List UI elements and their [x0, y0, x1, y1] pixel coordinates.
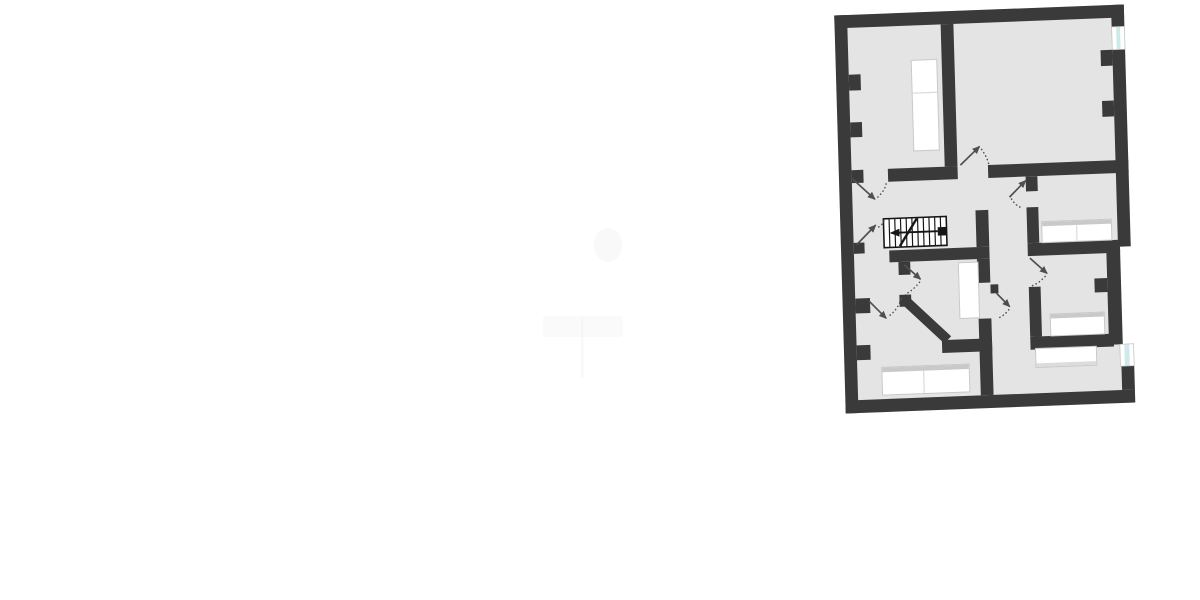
page — [0, 0, 1200, 600]
single-bed — [1035, 346, 1096, 367]
wall-stub — [850, 122, 862, 137]
floor-plan — [0, 0, 1200, 600]
wall-segment — [888, 166, 958, 182]
wall-segment — [942, 338, 992, 353]
wall-segment — [1029, 287, 1042, 337]
right-wall-bottom-window — [1120, 344, 1134, 366]
wall-segment — [1111, 4, 1124, 26]
desk — [958, 262, 979, 318]
wardrobe-body — [911, 59, 939, 151]
desk-body — [958, 262, 979, 318]
wall-segment — [975, 210, 989, 247]
double-bed-small — [1042, 219, 1112, 243]
wall-stub — [990, 284, 998, 293]
stair-newel-post — [938, 227, 947, 236]
wall-segment-jog — [1106, 247, 1123, 345]
bed-divider — [924, 371, 925, 393]
smudge-blob — [594, 228, 622, 262]
wall-segment — [979, 318, 994, 395]
bathtub — [1050, 312, 1105, 336]
right-wall-top-window — [1112, 26, 1125, 49]
wall-stub — [857, 345, 871, 360]
wall-stub — [854, 242, 865, 253]
wall-segment — [1026, 207, 1039, 243]
wall-segment — [1026, 176, 1038, 191]
wall-stub — [855, 298, 870, 313]
faint-watermark — [543, 228, 623, 378]
plan-rotated-group — [834, 4, 1135, 413]
smudge-line — [581, 318, 584, 378]
window-glass — [1124, 344, 1130, 365]
wardrobe — [911, 59, 939, 151]
staircase — [883, 216, 947, 247]
double-bed-large — [882, 364, 970, 395]
wall-stub — [1102, 101, 1114, 117]
window-glass — [1116, 27, 1121, 49]
wall-stub — [1101, 50, 1113, 66]
wall-stub — [1094, 278, 1107, 292]
wall-segment — [852, 170, 864, 183]
wall-stub — [849, 74, 861, 90]
wall-segment — [1121, 366, 1134, 390]
